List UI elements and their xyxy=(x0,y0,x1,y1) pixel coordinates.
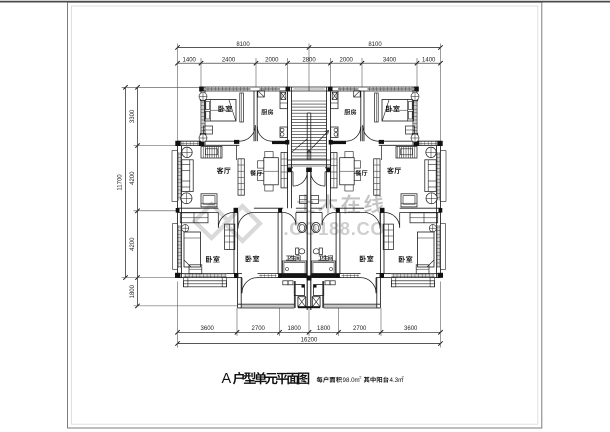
svg-text:.CO188.CO: .CO188.CO xyxy=(284,218,386,239)
svg-text:1800: 1800 xyxy=(288,326,302,332)
svg-text:2000: 2000 xyxy=(340,57,354,63)
svg-text:1800: 1800 xyxy=(317,326,331,332)
svg-text:2800: 2800 xyxy=(302,57,316,63)
svg-text:3600: 3600 xyxy=(404,326,418,332)
svg-text:4200: 4200 xyxy=(130,237,136,251)
svg-text:2700: 2700 xyxy=(252,326,266,332)
svg-text:2700: 2700 xyxy=(353,326,367,332)
svg-text:2000: 2000 xyxy=(265,57,279,63)
svg-text:2400: 2400 xyxy=(222,57,236,63)
svg-text:1400: 1400 xyxy=(183,57,197,63)
svg-text:4200: 4200 xyxy=(130,171,136,185)
svg-text:8100: 8100 xyxy=(236,42,250,48)
svg-text:8100: 8100 xyxy=(368,42,382,48)
svg-text:16200: 16200 xyxy=(301,338,318,344)
svg-text:3300: 3300 xyxy=(130,109,136,123)
svg-text:3600: 3600 xyxy=(201,326,215,332)
svg-text:98.0m: 98.0m xyxy=(343,377,360,384)
svg-text:3400: 3400 xyxy=(383,57,397,63)
svg-text:A: A xyxy=(222,371,232,387)
svg-text:1400: 1400 xyxy=(422,57,436,63)
svg-text:1800: 1800 xyxy=(130,284,136,298)
svg-text:11700: 11700 xyxy=(118,174,124,191)
